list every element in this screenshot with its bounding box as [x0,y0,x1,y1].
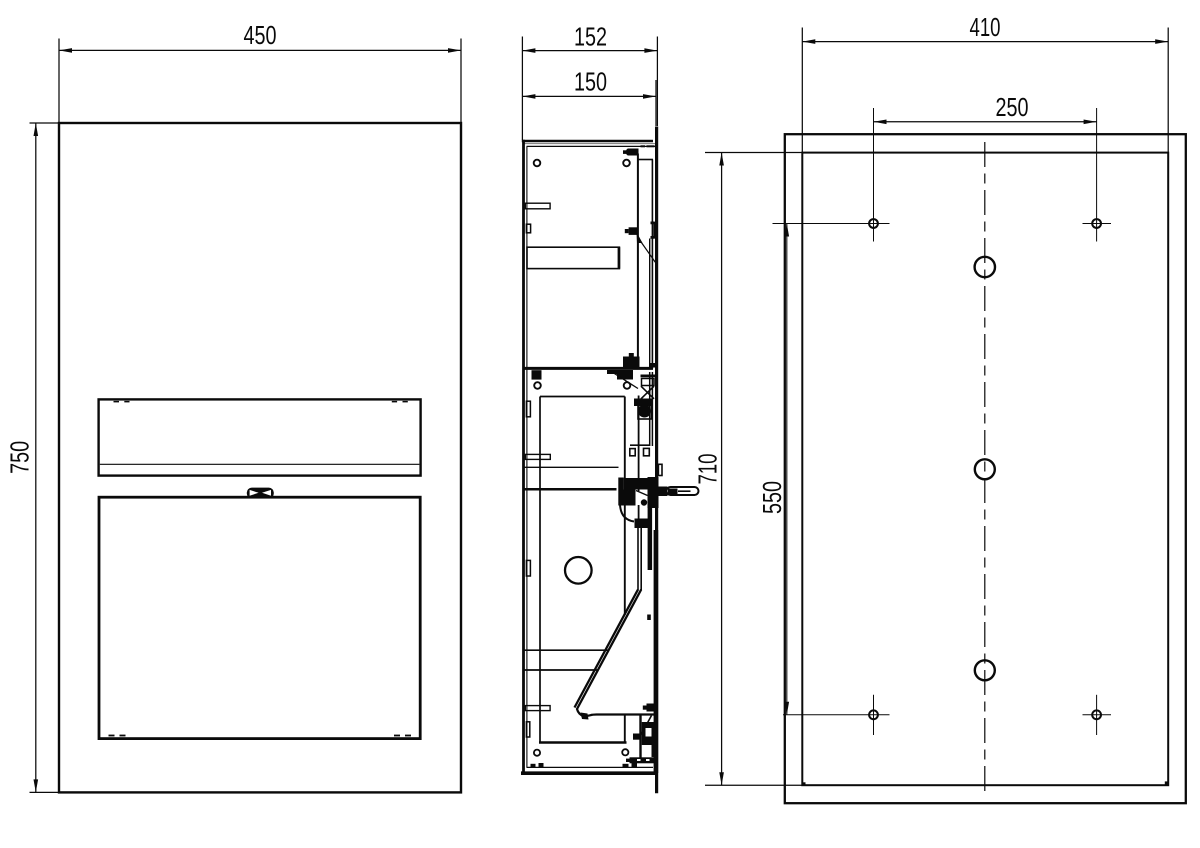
svg-text:150: 150 [574,67,607,97]
svg-text:410: 410 [970,12,1001,42]
svg-text:250: 250 [996,92,1029,122]
svg-text:450: 450 [244,20,277,50]
svg-text:550: 550 [757,481,787,514]
svg-text:152: 152 [574,22,607,52]
svg-text:710: 710 [693,454,723,485]
svg-text:750: 750 [5,441,35,474]
